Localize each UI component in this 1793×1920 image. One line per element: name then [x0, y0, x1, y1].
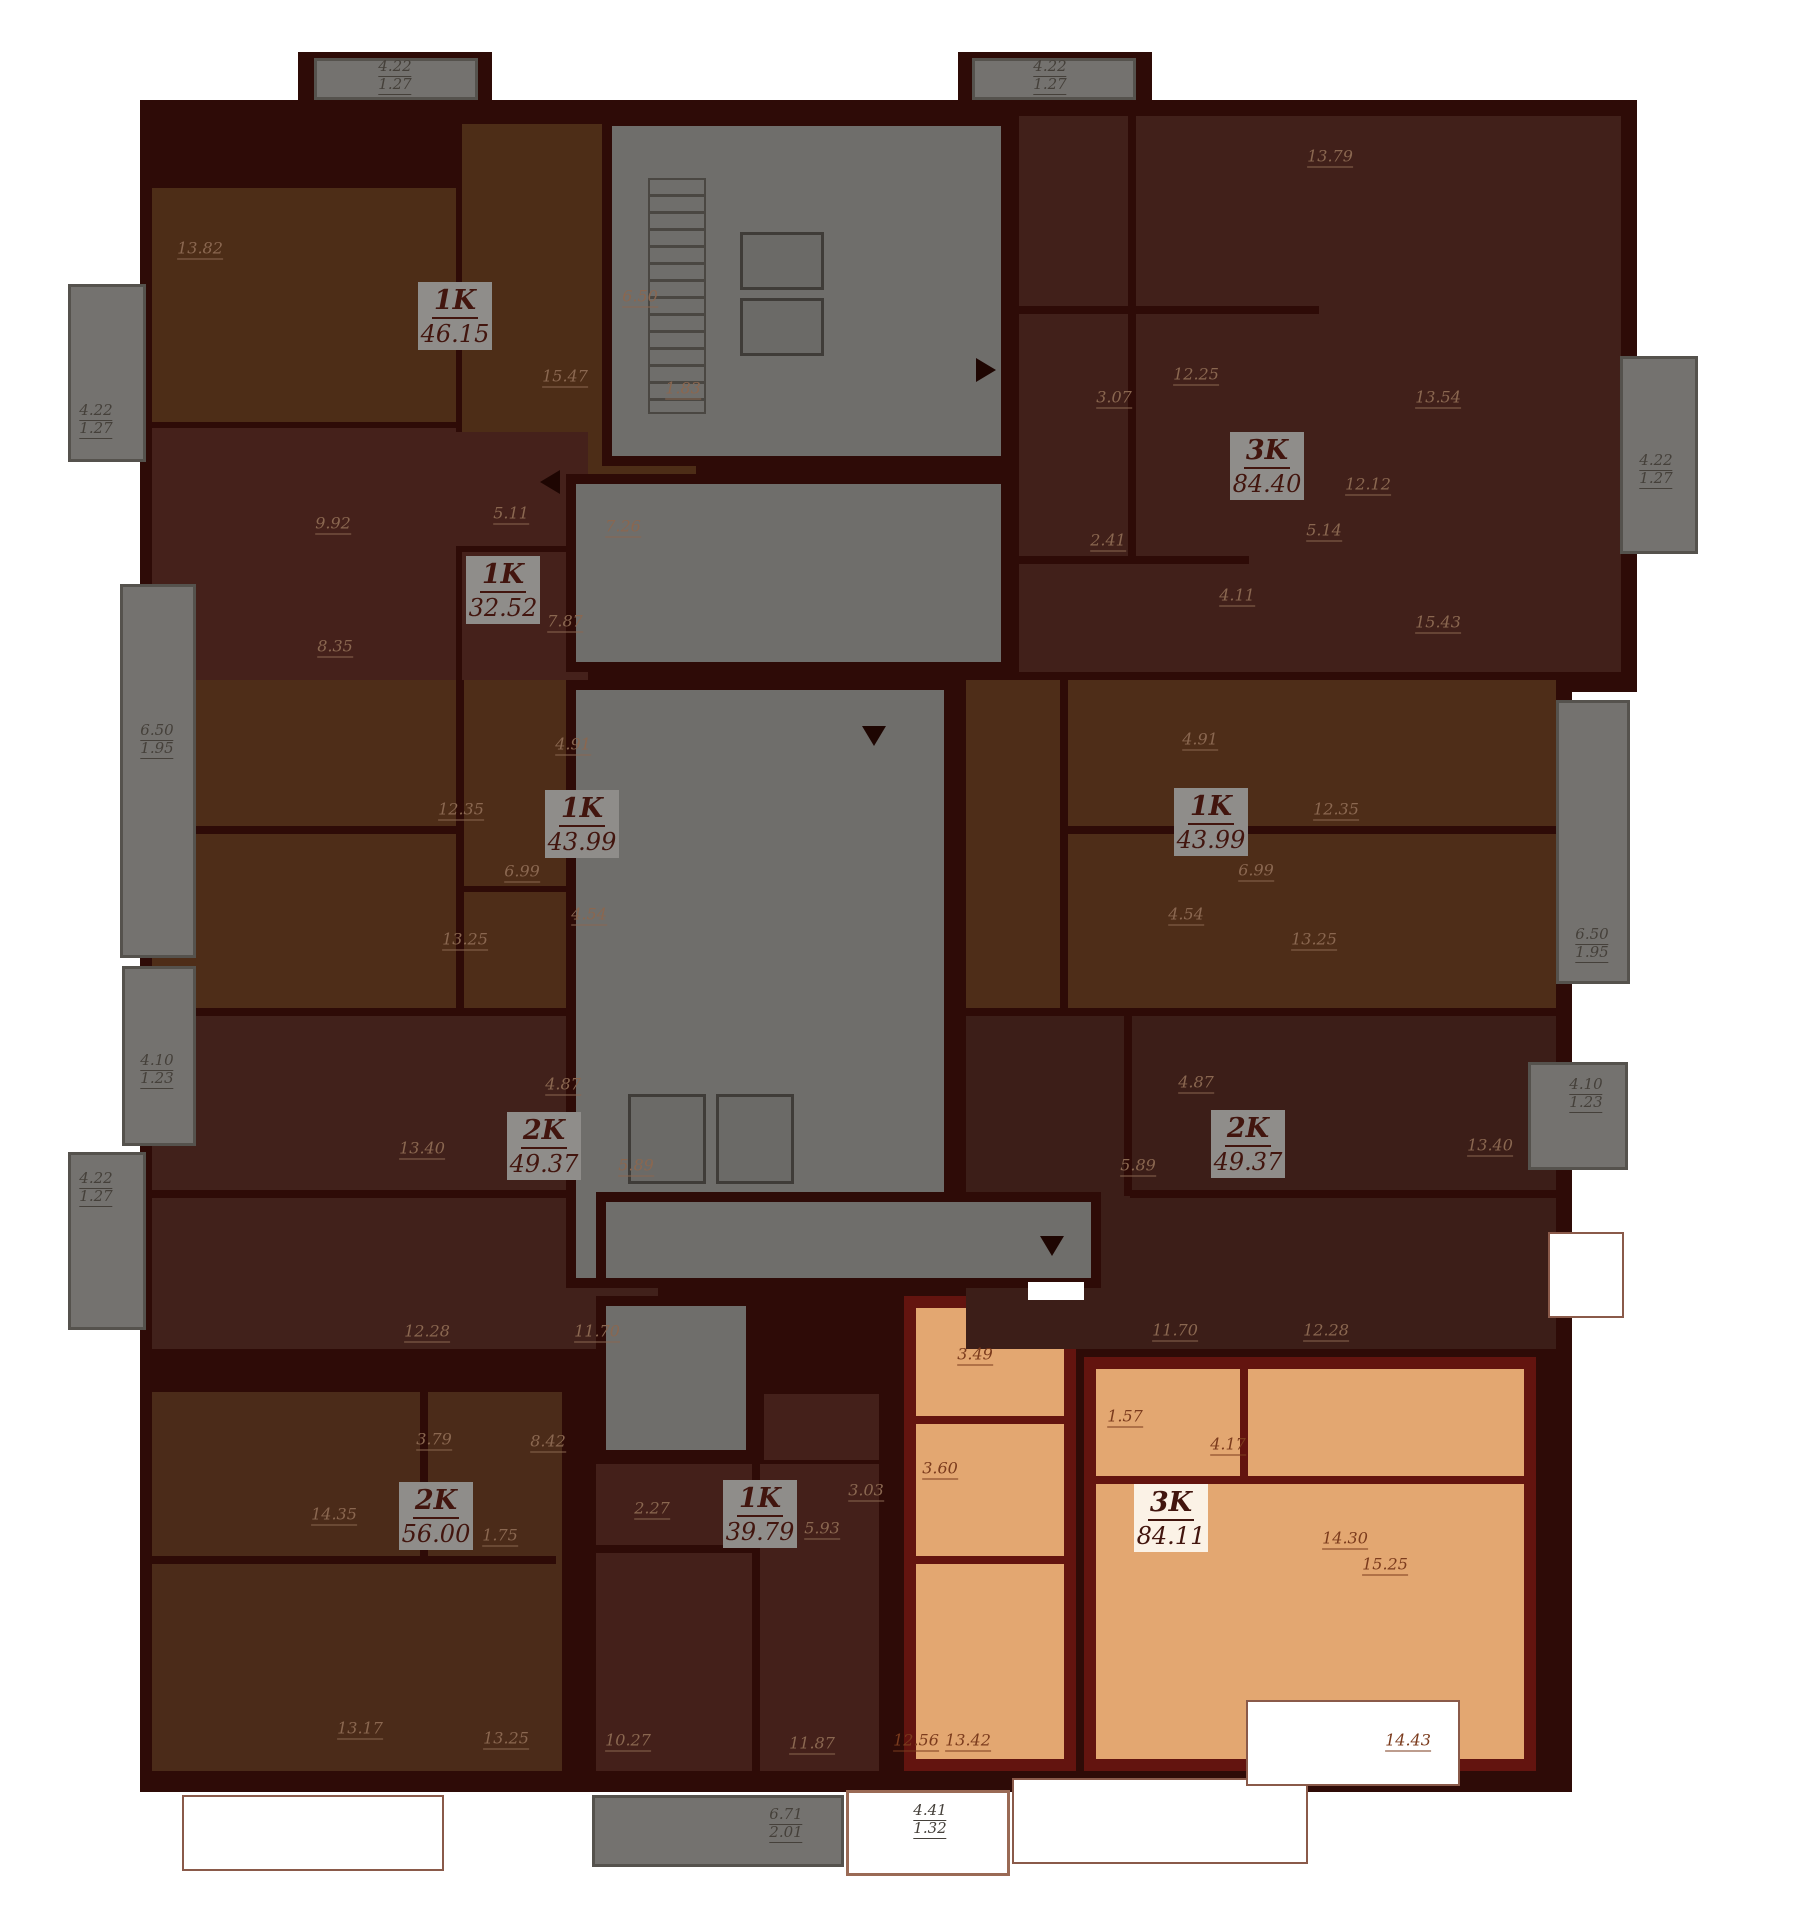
partition-wall — [152, 1556, 556, 1564]
apartment-1k-32-52[interactable] — [432, 432, 588, 546]
elevator-shaft-icon — [740, 232, 824, 290]
elevator-shaft-icon — [740, 298, 824, 356]
balcony-area-label: 1.23 — [140, 1071, 173, 1089]
unit-label-2k-49-37-right[interactable]: 2K49.37 — [1211, 1110, 1285, 1178]
unit-type: 2K — [1225, 1115, 1271, 1147]
unit-area: 84.40 — [1233, 472, 1302, 496]
room-area-label: 1.83 — [665, 381, 701, 400]
room-area-label: 13.82 — [177, 241, 223, 260]
unit-type: 1K — [737, 1485, 783, 1517]
room-area-label: 6.99 — [1238, 863, 1274, 882]
room-area-label: 8.42 — [530, 1434, 566, 1453]
unit-area: 43.99 — [1177, 828, 1246, 852]
partition-wall — [1128, 116, 1136, 556]
room-area-label: 4.54 — [571, 907, 607, 926]
unit-area: 39.79 — [726, 1520, 795, 1544]
unit-label-2k-56-00[interactable]: 2K56.00 — [399, 1482, 473, 1550]
unit-label-1k-46-15[interactable]: 1K46.15 — [418, 282, 492, 350]
room-area-label: 5.89 — [1120, 1158, 1156, 1177]
balcony-area-label: 1.32 — [913, 1821, 946, 1839]
stair-and-elevator-core — [596, 1296, 756, 1460]
entrance-arrow-icon — [540, 470, 560, 494]
room-area-label: 15.43 — [1415, 615, 1461, 634]
room-area-label: 4.11 — [1219, 588, 1255, 607]
apartment-1k-43-99-right[interactable] — [966, 680, 1556, 1008]
unit-label-1k-43-99-left[interactable]: 1K43.99 — [545, 790, 619, 858]
floorplan-canvas: 4.221.274.221.274.221.276.501.954.101.23… — [0, 0, 1793, 1920]
room-area-label: 3.79 — [416, 1432, 452, 1451]
room-area-label: 1.75 — [482, 1528, 518, 1547]
room-area-label: 14.35 — [311, 1507, 357, 1526]
partition-wall — [152, 1190, 592, 1198]
room-area-label: 3.03 — [848, 1483, 884, 1502]
unit-type: 3K — [1244, 437, 1290, 469]
room-area-label: 11.87 — [789, 1736, 835, 1755]
balcony-area-label: 1.27 — [1639, 471, 1672, 489]
room-area-label: 13.17 — [337, 1721, 383, 1740]
room-area-label: 12.56 — [893, 1733, 939, 1752]
room-area-label: 4.87 — [1178, 1075, 1214, 1094]
unit-area: 32.52 — [469, 596, 538, 620]
room-area-label: 5.93 — [804, 1521, 840, 1540]
entrance-arrow-icon — [976, 358, 996, 382]
stair-and-elevator-core — [566, 474, 1011, 672]
balcony-area-label: 2.01 — [769, 1825, 802, 1843]
entrance-arrow-icon — [1040, 1236, 1064, 1256]
room-area-label: 10.27 — [605, 1733, 651, 1752]
balcony — [120, 584, 196, 958]
room-area-label: 12.28 — [1303, 1323, 1349, 1342]
room-area-label: 2.27 — [634, 1501, 670, 1520]
stair-and-elevator-core — [596, 1192, 1101, 1288]
apartment-1k-32-52[interactable] — [152, 428, 456, 694]
room-area-label: 4.17 — [1210, 1437, 1246, 1456]
balcony-area-label: 1.27 — [1033, 77, 1066, 95]
room-area-label: 4.91 — [1182, 732, 1218, 751]
entrance-arrow-icon — [862, 726, 886, 746]
partition-wall — [1130, 1190, 1556, 1198]
room-area-label: 13.42 — [945, 1733, 991, 1752]
room-area-label: 14.30 — [1322, 1531, 1368, 1550]
room-area-label: 4.91 — [555, 737, 591, 756]
room-area-label: 13.25 — [442, 932, 488, 951]
unit-label-1k-39-79[interactable]: 1K39.79 — [723, 1480, 797, 1548]
entrance-door-gap — [1028, 1282, 1084, 1300]
room-area-label: 6.50 — [622, 289, 658, 308]
room-area-label: 5.11 — [493, 506, 529, 525]
room-area-label: 3.49 — [957, 1347, 993, 1366]
unit-label-3k-84-40[interactable]: 3K84.40 — [1230, 432, 1304, 500]
room-area-label: 13.40 — [1467, 1138, 1513, 1157]
room-area-label: 13.79 — [1307, 149, 1353, 168]
balcony — [592, 1795, 844, 1867]
balcony-area-label: 1.95 — [1575, 945, 1608, 963]
partition-wall — [1060, 826, 1556, 834]
room-area-label: 3.60 — [922, 1461, 958, 1480]
room-area-label: 12.35 — [438, 802, 484, 821]
partition-wall-selected — [1240, 1357, 1248, 1477]
room-area-label: 12.35 — [1313, 802, 1359, 821]
unit-label-3k-84-11[interactable]: 3K84.11 — [1134, 1484, 1208, 1552]
unit-type: 1K — [480, 561, 526, 593]
unit-type: 1K — [1188, 793, 1234, 825]
room-area-label: 5.89 — [618, 1158, 654, 1177]
room-area-label: 4.54 — [1168, 907, 1204, 926]
elevator-shaft-icon — [716, 1094, 794, 1184]
room-area-label: 7.26 — [605, 519, 641, 538]
balcony-area-label: 1.27 — [79, 421, 112, 439]
balcony — [182, 1795, 444, 1871]
balcony — [1012, 1778, 1308, 1864]
room-area-label: 9.92 — [315, 516, 351, 535]
unit-type: 1K — [559, 795, 605, 827]
room-area-label: 13.25 — [483, 1731, 529, 1750]
partition-wall — [1060, 680, 1068, 1012]
room-area-label: 13.25 — [1291, 932, 1337, 951]
apartment-3k-84-11[interactable] — [904, 1296, 1076, 1771]
unit-area: 49.37 — [1214, 1150, 1283, 1174]
partition-wall — [1019, 556, 1249, 564]
balcony-area-label: 1.23 — [1569, 1095, 1602, 1113]
apartment-1k-46-15[interactable] — [152, 188, 456, 422]
room-area-label: 1.57 — [1107, 1409, 1143, 1428]
unit-area: 46.15 — [421, 322, 490, 346]
room-area-label: 12.28 — [404, 1324, 450, 1343]
apartment-2k-56-00[interactable] — [152, 1392, 562, 1771]
unit-area: 56.00 — [402, 1522, 471, 1546]
room-area-label: 5.14 — [1306, 523, 1342, 542]
room-area-label: 15.25 — [1362, 1557, 1408, 1576]
room-area-label: 2.41 — [1090, 533, 1126, 552]
balcony-area-label: 1.27 — [378, 77, 411, 95]
unit-area: 84.11 — [1137, 1524, 1206, 1548]
partition-wall — [152, 826, 462, 834]
room-area-label: 12.12 — [1345, 477, 1391, 496]
partition-wall-selected — [1084, 1476, 1536, 1484]
room-area-label: 11.70 — [574, 1324, 620, 1343]
unit-type: 2K — [521, 1117, 567, 1149]
room-area-label: 15.47 — [542, 369, 588, 388]
partition-wall-selected — [904, 1416, 1076, 1424]
room-area-label: 12.25 — [1173, 367, 1219, 386]
unit-type: 3K — [1148, 1489, 1194, 1521]
unit-area: 49.37 — [510, 1152, 579, 1176]
room-area-label: 13.54 — [1415, 390, 1461, 409]
partition-wall-selected — [904, 1556, 1076, 1564]
balcony-area-label: 1.27 — [79, 1189, 112, 1207]
balcony — [1548, 1232, 1624, 1318]
room-area-label: 3.07 — [1096, 390, 1132, 409]
unit-label-2k-49-37-left[interactable]: 2K49.37 — [507, 1112, 581, 1180]
room-area-label: 8.35 — [317, 639, 353, 658]
partition-wall — [456, 680, 464, 1012]
room-area-label: 4.87 — [545, 1077, 581, 1096]
room-area-label: 13.40 — [399, 1141, 445, 1160]
unit-type: 2K — [413, 1487, 459, 1519]
room-area-label: 6.99 — [504, 864, 540, 883]
unit-label-1k-43-99-right[interactable]: 1K43.99 — [1174, 788, 1248, 856]
balcony-area-label: 1.95 — [140, 741, 173, 759]
partition-wall — [1019, 306, 1319, 314]
unit-area: 43.99 — [548, 830, 617, 854]
unit-label-1k-32-52[interactable]: 1K32.52 — [466, 556, 540, 624]
room-area-label: 14.43 — [1385, 1733, 1431, 1752]
room-area-label: 7.87 — [547, 614, 583, 633]
apartment-1k-39-79[interactable] — [764, 1394, 879, 1460]
room-area-label: 11.70 — [1152, 1323, 1198, 1342]
unit-type: 1K — [432, 287, 478, 319]
